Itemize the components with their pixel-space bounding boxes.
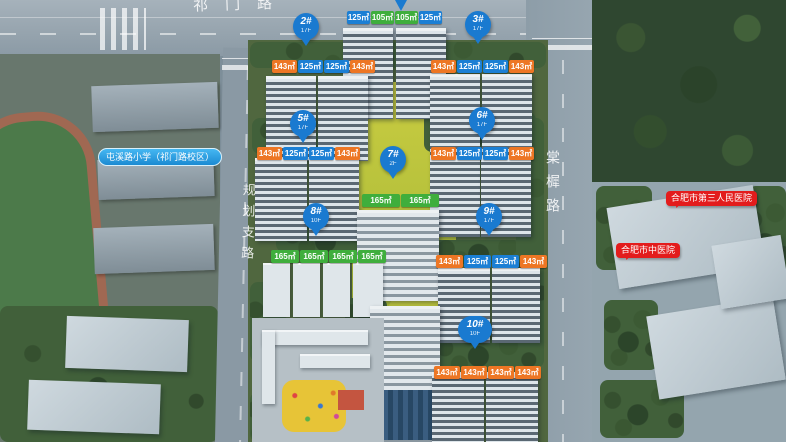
area-tag: 143㎡ — [431, 60, 456, 73]
area-tag: 125㎡ — [309, 147, 334, 160]
playground — [282, 380, 346, 432]
rooftop — [27, 380, 161, 435]
lane-markings — [562, 60, 564, 442]
building-pin-b7[interactable]: 7#2F — [380, 146, 406, 173]
pin-number: 6# — [469, 110, 495, 122]
area-tags-b3: 143㎡125㎡125㎡143㎡ — [431, 60, 534, 73]
lowrise-8 — [293, 263, 320, 317]
rooftop — [65, 316, 189, 372]
area-tag: 125㎡ — [298, 60, 323, 73]
solar-roof — [378, 390, 432, 440]
pin-number: 9# — [476, 206, 502, 218]
pin-floor: 17F — [469, 122, 495, 129]
area-tag: 143㎡ — [335, 147, 360, 160]
area-tags-b6: 143㎡125㎡125㎡143㎡ — [431, 147, 534, 160]
tower-9 — [492, 268, 540, 343]
pin-number: 2# — [293, 16, 319, 28]
pin-floor: 10F — [458, 331, 492, 338]
pin-number: 5# — [290, 113, 316, 125]
building-pin-b9[interactable]: 9#17F — [476, 203, 502, 230]
trees-mass — [592, 0, 786, 188]
lowrise-8 — [323, 263, 350, 317]
area-tag: 125㎡ — [492, 255, 519, 268]
pin-floor: 2F — [380, 161, 406, 168]
building-pin-b10[interactable]: 10#10F — [458, 316, 492, 343]
area-tag: 143㎡ — [461, 366, 487, 379]
area-tag: 143㎡ — [272, 60, 297, 73]
area-tags-b8: 165㎡165㎡165㎡165㎡ — [271, 250, 386, 263]
kindergarten-building — [300, 354, 370, 368]
building-pin-b5[interactable]: 5#17F — [290, 110, 316, 137]
area-tags-b10: 143㎡143㎡143㎡143㎡ — [434, 366, 541, 379]
play-structure — [338, 390, 364, 410]
kindergarten-building — [262, 330, 275, 404]
school-building — [93, 224, 215, 274]
poi-hospital-third-label[interactable]: 合肥市第三人民医院 — [666, 191, 757, 206]
building-pin-b8[interactable]: 8#10F — [303, 203, 329, 230]
hospital-rooftop — [711, 235, 786, 309]
pin-floor: 17F — [465, 26, 491, 33]
road-label-left: 规划支路 — [237, 183, 258, 267]
area-tag: 105㎡ — [371, 11, 394, 24]
area-tag: 165㎡ — [271, 250, 299, 263]
pin-number: 10# — [458, 319, 492, 331]
crosswalk — [100, 8, 146, 50]
area-tags-b2: 143㎡125㎡125㎡143㎡ — [272, 60, 375, 73]
building-pin-b3[interactable]: 3#17F — [465, 11, 491, 38]
area-tag: 125㎡ — [483, 147, 508, 160]
area-tag: 125㎡ — [457, 147, 482, 160]
building-pin-b2[interactable]: 2#17F — [293, 13, 319, 40]
area-tag: 125㎡ — [457, 60, 482, 73]
area-tag: 143㎡ — [515, 366, 541, 379]
tower-10 — [486, 372, 538, 442]
area-tag: 165㎡ — [401, 194, 439, 207]
pin-number: 8# — [303, 206, 329, 218]
pin-number: 3# — [465, 14, 491, 26]
area-tag: 125㎡ — [483, 60, 508, 73]
area-tag: 165㎡ — [362, 194, 400, 207]
area-tag: 143㎡ — [431, 147, 456, 160]
pin-floor: 17F — [476, 218, 502, 225]
building-pin-b6[interactable]: 6#17F — [469, 107, 495, 134]
area-tag: 143㎡ — [488, 366, 514, 379]
lowrise-8 — [263, 263, 290, 317]
area-tags-b7: 165㎡165㎡ — [362, 194, 439, 207]
area-tag: 143㎡ — [257, 147, 282, 160]
building-pin-stub — [395, 0, 407, 17]
pin-floor: 17F — [293, 28, 319, 35]
pin-floor: 17F — [290, 125, 316, 132]
area-tag: 165㎡ — [300, 250, 328, 263]
area-tag: 143㎡ — [509, 60, 534, 73]
school-building — [91, 82, 219, 132]
road-label-right: 棠樨路 — [543, 150, 563, 222]
area-tag: 143㎡ — [434, 366, 460, 379]
area-tags-b9: 143㎡125㎡125㎡143㎡ — [436, 255, 547, 268]
tower-5 — [255, 158, 307, 241]
area-tag: 125㎡ — [419, 11, 442, 24]
area-tag: 143㎡ — [350, 60, 375, 73]
pin-floor: 10F — [303, 218, 329, 225]
area-tag: 125㎡ — [347, 11, 370, 24]
area-tag: 165㎡ — [358, 250, 386, 263]
tower-10 — [432, 372, 484, 442]
area-tag: 143㎡ — [509, 147, 534, 160]
area-tag: 125㎡ — [324, 60, 349, 73]
pin-number: 7# — [380, 149, 406, 161]
site-aerial-map: 祁门路 规划支路 棠樨路 屯溪路小学（祁门路校区） 合肥市第三人民医院 合肥市中… — [0, 0, 786, 442]
poi-hospital-tcm-label[interactable]: 合肥市中医院 — [616, 243, 680, 258]
area-tag: 143㎡ — [520, 255, 547, 268]
kindergarten-building — [262, 330, 368, 345]
poi-school-label[interactable]: 屯溪路小学（祁门路校区） — [98, 148, 222, 166]
area-tag: 165㎡ — [329, 250, 357, 263]
area-tag: 143㎡ — [436, 255, 463, 268]
area-tag: 125㎡ — [464, 255, 491, 268]
